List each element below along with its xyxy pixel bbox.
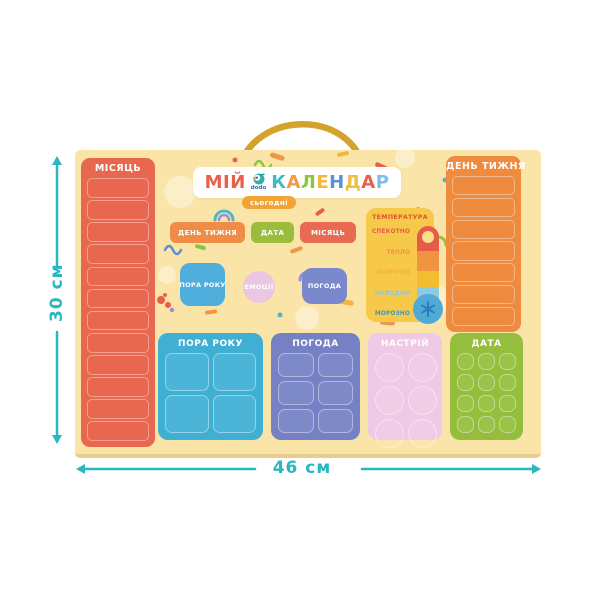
title-letter: А <box>286 172 300 193</box>
token-card-square: ПОГОДА <box>302 268 347 304</box>
bottom-panel-grid <box>450 349 523 440</box>
grid-cell <box>375 353 404 382</box>
dodo-brand-name: dodo <box>251 186 266 192</box>
grid-cell <box>457 395 474 412</box>
month-slot <box>87 267 149 287</box>
temperature-level-label: СПЕКОТНО <box>372 229 410 235</box>
tag-button-row: ДЕНЬ ТИЖНЯДАТАМІСЯЦЬ <box>170 222 356 243</box>
calendar-board: МІСЯЦЬ ДЕНЬ ТИЖНЯ МІЙ dodo КАЛЕНДАР <box>75 150 541 458</box>
weekday-slot <box>452 176 515 195</box>
grid-cell <box>165 353 209 391</box>
bottom-panel-label: ДАТА <box>450 333 523 349</box>
month-slot <box>87 355 149 375</box>
bottom-panel-grid <box>368 349 442 455</box>
weekday-panel-label: ДЕНЬ ТИЖНЯ <box>446 156 521 172</box>
weekday-slot <box>452 285 515 304</box>
month-slot <box>87 421 149 441</box>
grid-cell <box>457 374 474 391</box>
tag-button-дата: ДАТА <box>251 222 294 243</box>
weekday-slot-list <box>446 172 521 332</box>
weekday-slot <box>452 307 515 326</box>
month-slot <box>87 200 149 220</box>
month-panel: МІСЯЦЬ <box>81 158 155 447</box>
month-slot <box>87 399 149 419</box>
title-word-miy: МІЙ <box>205 172 246 193</box>
month-slot <box>87 178 149 198</box>
width-dimension-label: 46 см <box>272 458 332 478</box>
month-slot <box>87 289 149 309</box>
month-slot <box>87 333 149 353</box>
month-slot <box>87 244 149 264</box>
temperature-level-label: ПОМІРНО <box>372 270 410 276</box>
grid-cell <box>165 395 209 433</box>
grid-cell <box>478 395 495 412</box>
title-letter: Е <box>316 172 329 193</box>
temperature-levels: СПЕКОТНОТЕПЛОПОМІРНОХОЛОДНОМОРОЗНО <box>372 225 413 325</box>
title-letter: Н <box>329 172 345 193</box>
bottom-panel-label: ПОГОДА <box>271 333 360 349</box>
grid-cell <box>457 353 474 370</box>
title-letter: А <box>361 172 375 193</box>
temperature-title: ТЕМПЕРАТУРА <box>366 208 434 221</box>
grid-cell <box>213 353 257 391</box>
bottom-panel-row: ПОРА РОКУПОГОДАНАСТРІЙДАТА <box>158 333 523 440</box>
bottom-panel-пора року: ПОРА РОКУ <box>158 333 263 440</box>
tag-button-день тижня: ДЕНЬ ТИЖНЯ <box>170 222 245 243</box>
title-word-kalendar: КАЛЕНДАР <box>271 172 389 193</box>
bottom-panel-label: ПОРА РОКУ <box>158 333 263 349</box>
grid-cell <box>478 374 495 391</box>
title-banner: МІЙ dodo КАЛЕНДАР <box>193 167 401 198</box>
product-image: МІСЯЦЬ ДЕНЬ ТИЖНЯ МІЙ dodo КАЛЕНДАР <box>0 0 600 600</box>
bottom-panel-grid <box>271 349 360 440</box>
temperature-level-label: ТЕПЛО <box>372 250 410 256</box>
month-slot <box>87 311 149 331</box>
grid-cell <box>375 386 404 415</box>
grid-cell <box>318 353 354 377</box>
grid-cell <box>499 416 516 433</box>
bottom-panel-grid <box>158 349 263 440</box>
grid-cell <box>278 409 314 433</box>
bottom-panel-дата: ДАТА <box>450 333 523 440</box>
title-letter: Д <box>345 172 362 193</box>
grid-cell <box>408 419 437 448</box>
token-card-circle: ЕМОЦІЇ <box>243 271 275 303</box>
month-slot <box>87 377 149 397</box>
title-letter: К <box>271 172 286 193</box>
grid-cell <box>478 353 495 370</box>
grid-cell <box>278 353 314 377</box>
weekday-slot <box>452 263 515 282</box>
grid-cell <box>375 419 404 448</box>
tag-button-місяць: МІСЯЦЬ <box>300 222 356 243</box>
dodo-brand-logo: dodo <box>251 173 266 192</box>
grid-cell <box>499 353 516 370</box>
grid-cell <box>318 409 354 433</box>
height-dimension-label: 30 см <box>47 268 67 322</box>
month-slot <box>87 222 149 242</box>
temperature-level-label: МОРОЗНО <box>372 311 410 317</box>
temperature-level-label: ХОЛОДНО <box>372 291 410 297</box>
title-letter: Л <box>301 172 316 193</box>
thermometer-icon <box>413 225 443 325</box>
grid-cell <box>478 416 495 433</box>
grid-cell <box>408 386 437 415</box>
grid-cell <box>457 416 474 433</box>
handle-rope-icon <box>0 0 600 170</box>
weekday-slot <box>452 241 515 260</box>
temperature-panel: ТЕМПЕРАТУРА СПЕКОТНОТЕПЛОПОМІРНОХОЛОДНОМ… <box>366 208 434 322</box>
grid-cell <box>499 395 516 412</box>
grid-cell <box>318 381 354 405</box>
month-slot-list <box>81 174 155 447</box>
month-panel-label: МІСЯЦЬ <box>81 158 155 174</box>
weekday-panel: ДЕНЬ ТИЖНЯ <box>446 156 521 332</box>
temperature-body: СПЕКОТНОТЕПЛОПОМІРНОХОЛОДНОМОРОЗНО <box>366 221 434 331</box>
bottom-panel-погода: ПОГОДА <box>271 333 360 440</box>
grid-cell <box>278 381 314 405</box>
token-card-square: ПОРА РОКУ <box>180 263 225 306</box>
grid-cell <box>213 395 257 433</box>
today-badge: сьогодні <box>242 196 296 209</box>
grid-cell <box>499 374 516 391</box>
grid-cell <box>408 353 437 382</box>
title-letter: Р <box>376 172 390 193</box>
bottom-panel-label: НАСТРІЙ <box>368 333 442 349</box>
weekday-slot <box>452 198 515 217</box>
bottom-panel-настрій: НАСТРІЙ <box>368 333 442 440</box>
weekday-slot <box>452 220 515 239</box>
